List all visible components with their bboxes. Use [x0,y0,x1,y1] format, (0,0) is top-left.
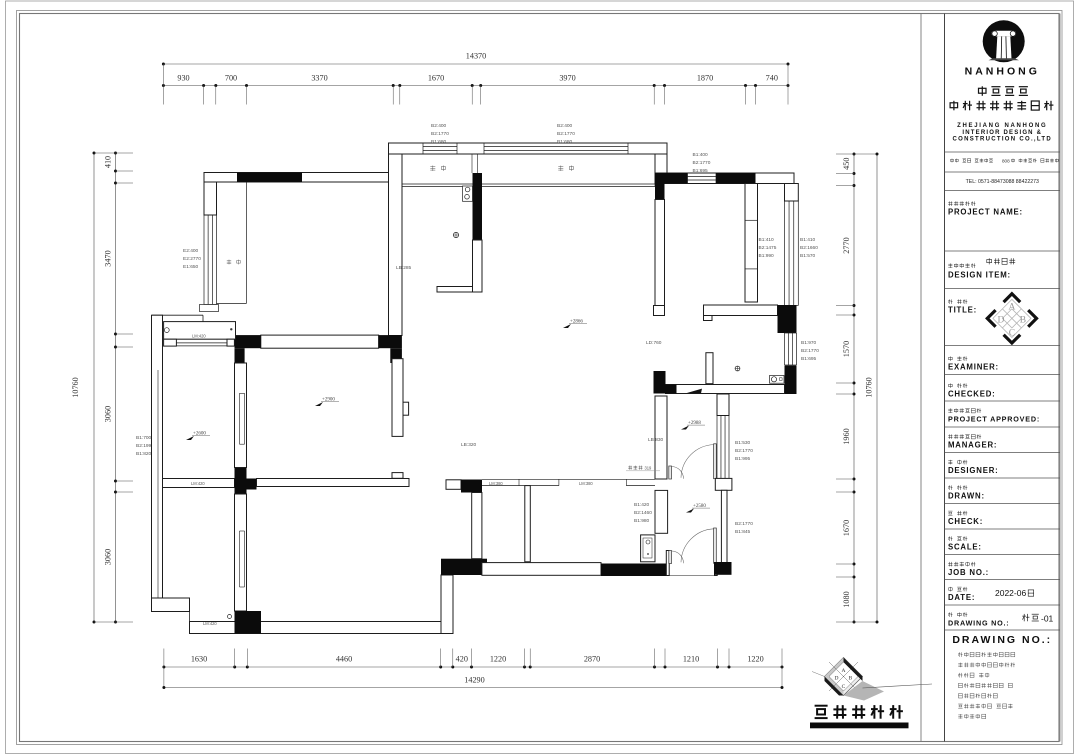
svg-text:INTERIOR DESIGN &: INTERIOR DESIGN & [962,130,1042,136]
svg-text:DESIGNER:: DESIGNER: [948,466,999,475]
svg-text:DRAWING NO.:: DRAWING NO.: [952,634,1052,646]
svg-text:B1:530: B1:530 [735,440,751,446]
svg-text:+2600: +2600 [193,432,206,437]
svg-text:B2:1770: B2:1770 [735,448,753,454]
svg-text:LB:285: LB:285 [396,265,412,271]
svg-text:B: B [1020,316,1026,326]
svg-text:PROJECT NAME:: PROJECT NAME: [948,208,1023,217]
svg-text:4460: 4460 [336,655,352,664]
svg-text:B2:1770: B2:1770 [801,348,819,354]
svg-text:LB:320: LB:320 [461,442,477,448]
svg-text:LM:420: LM:420 [203,621,217,626]
svg-text:2770: 2770 [842,237,851,253]
svg-text:1220: 1220 [490,655,506,664]
svg-text:1630: 1630 [191,655,207,664]
svg-text:B: B [849,676,853,682]
svg-text:C: C [1009,329,1015,339]
svg-text:D: D [835,676,839,682]
svg-text:450: 450 [842,158,851,170]
svg-text:2022-06: 2022-06 [995,588,1026,598]
svg-text:B1:820: B1:820 [136,451,152,457]
svg-text:B1:990: B1:990 [759,253,775,259]
svg-text:1080: 1080 [842,591,851,607]
svg-text:B1:400: B1:400 [693,152,709,158]
svg-text:A: A [1008,303,1015,313]
svg-text:14370: 14370 [466,52,486,61]
svg-text:EXAMINER:: EXAMINER: [948,363,999,372]
svg-text:B2:1770: B2:1770 [557,131,575,137]
svg-text:C: C [842,684,846,690]
svg-text:10760: 10760 [865,377,874,397]
svg-text:A: A [842,668,846,674]
svg-text:2870: 2870 [584,655,600,664]
svg-text:TITLE:: TITLE: [948,306,977,315]
svg-text:B2:400: B2:400 [557,123,573,129]
svg-text:LM:380: LM:380 [489,481,503,486]
svg-text:B2:1460: B2:1460 [634,510,652,516]
svg-text:PROJECT APPROVED:: PROJECT APPROVED: [948,415,1040,424]
svg-text:B2:1770: B2:1770 [431,131,449,137]
svg-text:E2:400: E2:400 [183,248,199,254]
svg-text:CHECKED:: CHECKED: [948,390,996,399]
svg-text:B1:700: B1:700 [136,435,152,441]
svg-text:B1:695: B1:695 [693,168,709,174]
svg-text:1210: 1210 [683,655,699,664]
svg-text:ZHEJIANG NANHONG: ZHEJIANG NANHONG [957,123,1047,129]
svg-text:B2:400: B2:400 [431,123,447,129]
svg-text:E2:2770: E2:2770 [183,256,201,262]
svg-text:B2:1660: B2:1660 [800,245,818,251]
svg-text:LM:380: LM:380 [579,481,593,486]
svg-text:JOB NO.:: JOB NO.: [948,568,989,577]
svg-text:1570: 1570 [842,341,851,357]
svg-text:CONSTRUCTION CO.,LTD: CONSTRUCTION CO.,LTD [952,137,1052,143]
svg-text:1670: 1670 [428,74,444,83]
svg-text:E1:650: E1:650 [183,264,199,270]
svg-text:B1:970: B1:970 [801,340,817,346]
svg-text:B2:1770: B2:1770 [693,160,711,166]
svg-text:D: D [997,316,1004,326]
svg-text:NANHONG: NANHONG [965,66,1040,78]
svg-text:10760: 10760 [71,377,80,397]
svg-text:B1:410: B1:410 [800,237,816,243]
svg-text:TEL: 0571-88473088 88422273: TEL: 0571-88473088 88422273 [966,179,1039,185]
svg-text:3060: 3060 [104,406,113,422]
svg-text:+2866: +2866 [570,320,583,325]
svg-text:930: 930 [177,74,189,83]
svg-text:319: 319 [645,465,653,470]
svg-text:MANAGER:: MANAGER: [948,441,997,450]
svg-text:1670: 1670 [842,520,851,536]
svg-text:+2900: +2900 [322,398,335,403]
svg-text:LB:830: LB:830 [648,437,664,443]
svg-text:808: 808 [1002,159,1010,164]
svg-text:DRAWING NO.:: DRAWING NO.: [948,619,1010,628]
svg-text:B1:410: B1:410 [759,237,775,243]
svg-text:B1:995: B1:995 [735,456,751,462]
svg-text:B1:420: B1:420 [634,502,650,508]
svg-text:3970: 3970 [559,74,575,83]
svg-text:B1:680: B1:680 [557,139,573,145]
svg-text:CHECK:: CHECK: [948,517,983,526]
svg-text:410: 410 [104,156,113,168]
svg-text:700: 700 [225,74,237,83]
svg-text:B1:570: B1:570 [800,253,816,259]
svg-text:B1:845: B1:845 [735,529,751,535]
svg-text:+2580: +2580 [693,504,706,509]
svg-text:3060: 3060 [104,549,113,565]
svg-text:1870: 1870 [697,74,713,83]
svg-text:+2988: +2988 [688,421,701,426]
svg-text:DESIGN ITEM:: DESIGN ITEM: [948,271,1011,280]
svg-text:B1:680: B1:680 [431,139,447,145]
svg-text:DATE:: DATE: [948,593,975,602]
svg-text:14290: 14290 [464,676,484,685]
svg-text:B2:1770: B2:1770 [735,521,753,527]
svg-text:B1:695: B1:695 [801,356,817,362]
svg-text:DRAWN:: DRAWN: [948,492,985,501]
svg-text:1220: 1220 [747,655,763,664]
svg-text:1960: 1960 [842,428,851,444]
svg-text:3470: 3470 [104,250,113,266]
svg-text:LM:420: LM:420 [192,334,206,339]
svg-text:420: 420 [456,655,468,664]
svg-text:LD:760: LD:760 [646,340,662,346]
svg-text:740: 740 [766,74,778,83]
svg-text:B2:1475: B2:1475 [759,245,777,251]
svg-text:-01: -01 [1041,614,1054,624]
svg-text:LM:420: LM:420 [191,481,205,486]
svg-text:SCALE:: SCALE: [948,543,982,552]
svg-text:B1:980: B1:980 [634,518,650,524]
svg-text:3370: 3370 [311,74,327,83]
